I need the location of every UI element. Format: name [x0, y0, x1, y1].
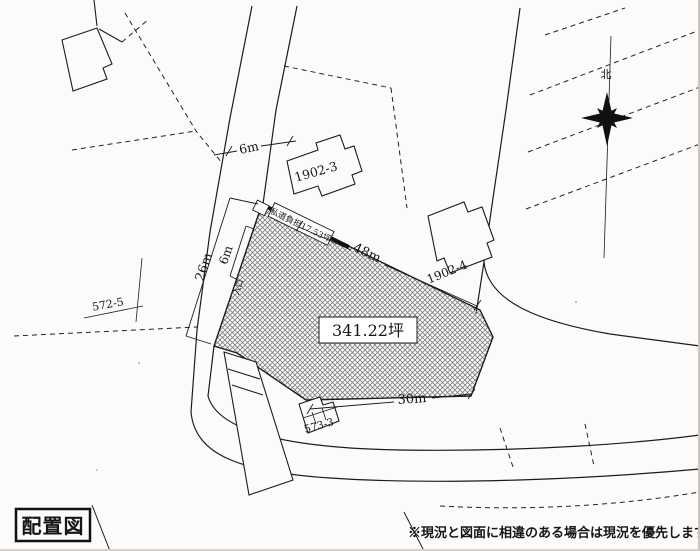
lot-572-5-boundary-line: [136, 258, 142, 322]
boundary-bottom-arc: [440, 492, 700, 508]
drawing-title: 配置図: [22, 514, 85, 538]
title-block: 配置図: [16, 509, 90, 541]
dim-tick-road-width: [226, 136, 293, 156]
building-top-left: [62, 28, 112, 91]
disclaimer-note: ※現況と図面に相違のある場合は現況を優先します。: [408, 525, 700, 541]
dim-label-frontage: 26m: [193, 251, 217, 283]
north-arrow: 北: [581, 36, 633, 258]
dim-label-road-width: 6m: [238, 138, 261, 157]
boundary-topright-1: [530, 30, 700, 95]
plot-area-label: 341.22坪: [332, 321, 404, 340]
boundary-topleft-west: [72, 131, 196, 150]
bottom-line-left: [92, 505, 110, 551]
boundary-topright-3: [526, 144, 700, 209]
boundary-1902-3-east: [391, 88, 407, 208]
misc-lines: [92, 505, 424, 551]
boundary-topright-4: [545, 8, 625, 35]
dim-label-entrance-width: 6m: [216, 243, 236, 266]
building-top-left-tie: [94, 0, 97, 26]
boundary-1902-3-north: [284, 66, 391, 88]
site-plan-canvas: 私道負担17.53坪 341.22坪 1902-3 1902-4 572-5 5…: [0, 0, 700, 551]
north-label: 北: [601, 68, 612, 81]
boundary-left-572: [14, 327, 197, 336]
road-right-boundary: [484, 8, 700, 346]
dim-label-south-edge: 30m: [397, 391, 427, 408]
boundary-topleft-diagonal: [125, 13, 222, 163]
